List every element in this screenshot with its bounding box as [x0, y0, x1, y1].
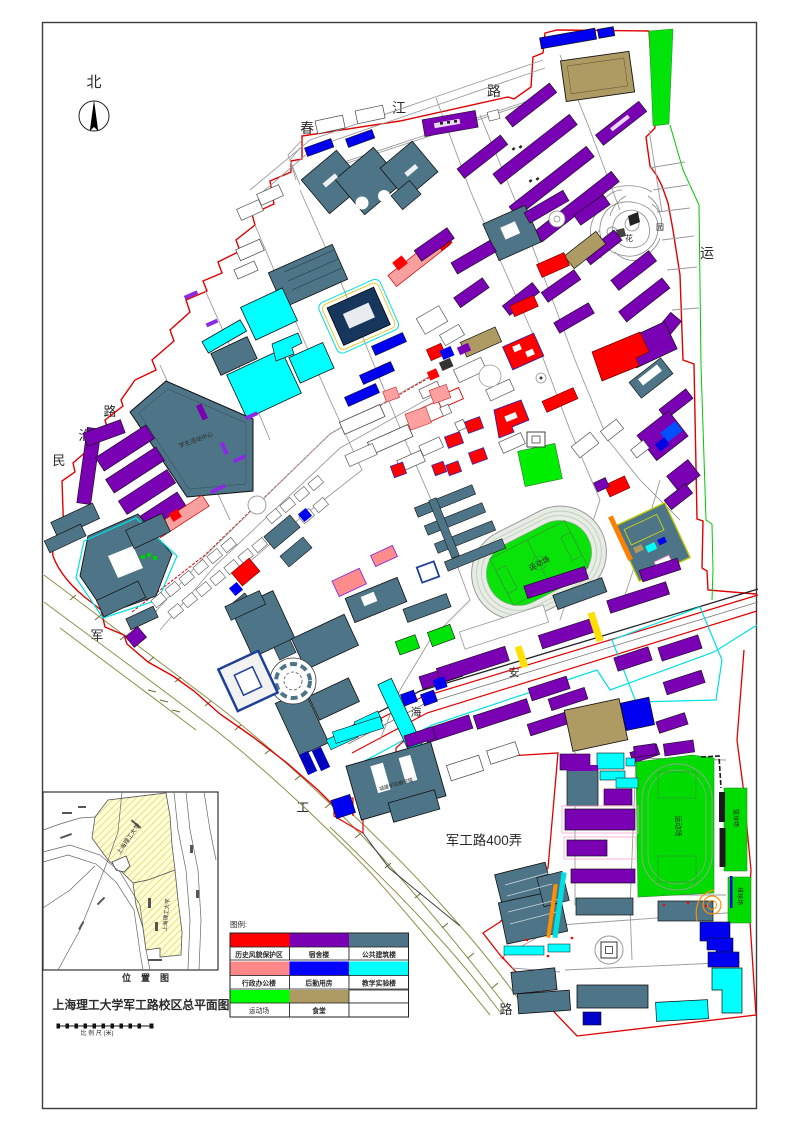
svg-text:比 例 尺 (米): 比 例 尺 (米): [81, 1029, 114, 1037]
svg-text:位置图: 位置图: [122, 972, 179, 983]
svg-text:排球场: 排球场: [736, 887, 744, 905]
svg-text:食堂: 食堂: [311, 1006, 326, 1015]
svg-text:春: 春: [300, 120, 314, 136]
svg-text:园: 园: [656, 223, 664, 232]
svg-text:北: 北: [86, 74, 101, 91]
svg-text:宿舍楼: 宿舍楼: [309, 950, 330, 959]
svg-text:公共建筑楼: 公共建筑楼: [362, 950, 396, 959]
svg-text:运动场: 运动场: [674, 816, 683, 837]
svg-text:花: 花: [625, 233, 633, 243]
svg-text:篮球场: 篮球场: [732, 809, 740, 827]
svg-text:图例:: 图例:: [230, 919, 247, 929]
svg-text:运动场: 运动场: [249, 1006, 270, 1015]
svg-text:路: 路: [499, 1002, 512, 1017]
svg-text:历史风貌保护区: 历史风貌保护区: [235, 950, 283, 959]
svg-text:后勤用房: 后勤用房: [305, 979, 332, 988]
svg-text:民: 民: [52, 453, 65, 468]
svg-text:教学实验楼: 教学实验楼: [361, 979, 396, 988]
svg-text:行政办公楼: 行政办公楼: [241, 979, 276, 988]
svg-text:上海理工大学军工路校区总平面图: 上海理工大学军工路校区总平面图: [53, 998, 230, 1012]
svg-text:运: 运: [700, 245, 714, 261]
svg-text:军工路400弄: 军工路400弄: [446, 833, 523, 848]
